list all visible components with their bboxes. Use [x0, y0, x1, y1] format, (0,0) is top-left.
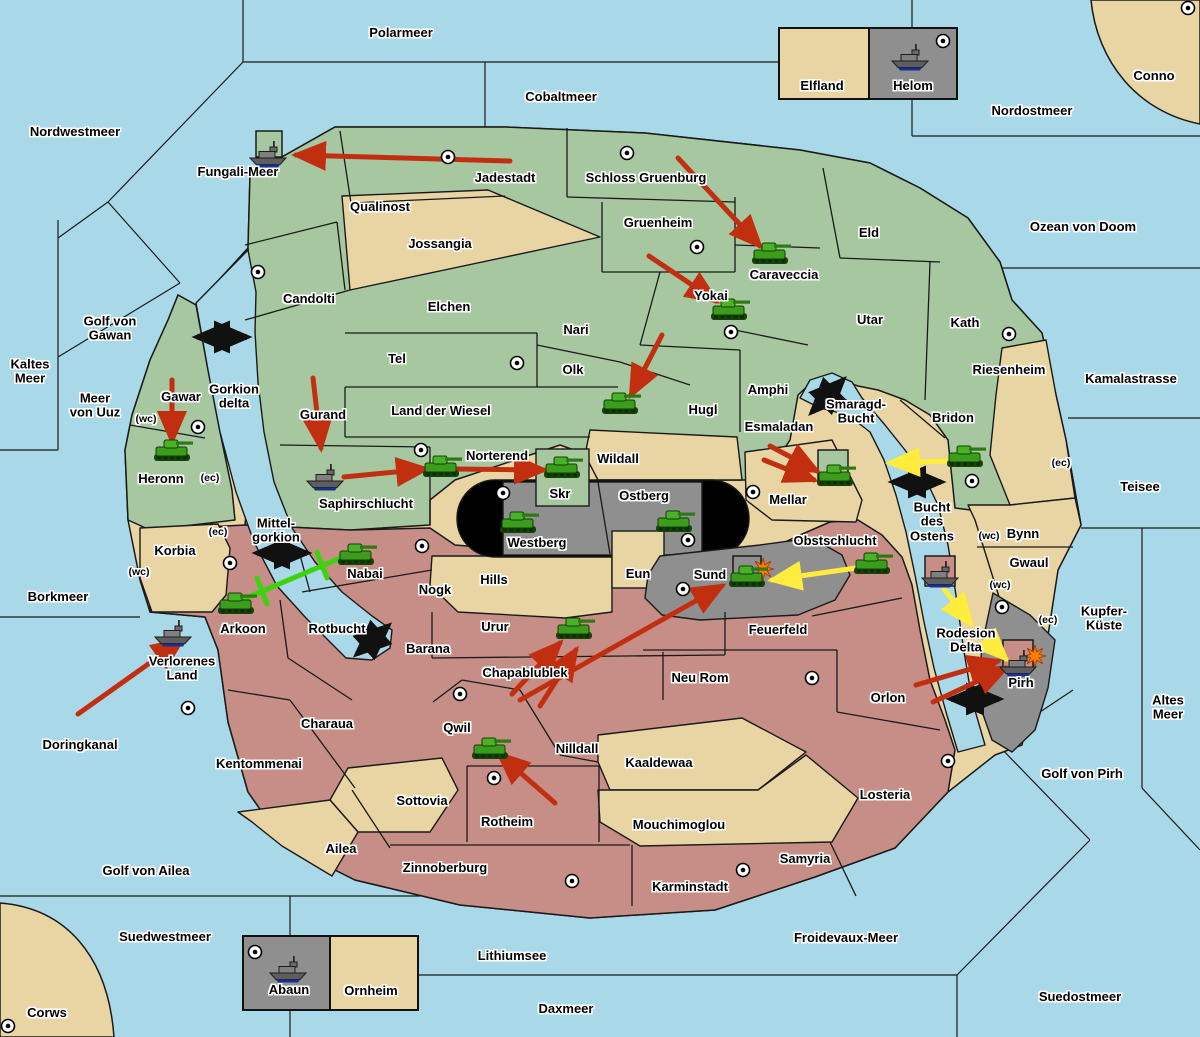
label-elchen: Elchen: [428, 300, 471, 314]
label-kupfer-kueste: Kupfer- Küste: [1081, 605, 1127, 634]
label-utar: Utar: [857, 313, 883, 327]
label-smaragd-bucht: Smaragd- Bucht: [826, 398, 886, 427]
label-wc-korbia: (wc): [129, 567, 150, 579]
label-eun: Eun: [626, 567, 651, 581]
label-wc-bynn: (wc): [979, 531, 1000, 543]
label-mouchimoglou: Mouchimoglou: [633, 818, 725, 832]
label-skr: Skr: [550, 487, 571, 501]
label-urur: Urur: [481, 620, 508, 634]
label-kamalastrasse: Kamalastrasse: [1085, 372, 1177, 386]
map-labels-layer: PolarmeerNordwestmeerCobaltmeerNordostme…: [0, 0, 1200, 1037]
label-meer-von-uuz: Meer von Uuz: [70, 392, 121, 421]
label-golf-von-pirh: Golf von Pirh: [1041, 767, 1123, 781]
label-fungali-meer: Fungali-Meer: [198, 165, 279, 179]
label-eld: Eld: [859, 226, 879, 240]
label-polarmeer: Polarmeer: [369, 26, 433, 40]
label-ornheim: Ornheim: [344, 984, 397, 998]
label-froidevaux-meer: Froidevaux-Meer: [794, 931, 898, 945]
label-norterend: Norterend: [466, 449, 528, 463]
label-mittel-gorkion: Mittel- gorkion: [252, 517, 300, 546]
label-kath: Kath: [951, 316, 980, 330]
label-sottovia: Sottovia: [396, 794, 447, 808]
label-borkmeer: Borkmeer: [28, 590, 89, 604]
label-bynn: Bynn: [1007, 527, 1040, 541]
label-conno: Conno: [1133, 69, 1174, 83]
label-rotbucht: Rotbucht: [308, 622, 365, 636]
label-kaaldewaa: Kaaldewaa: [625, 756, 692, 770]
label-verlorenes-land: Verlorenes Land: [149, 655, 216, 684]
label-golf-von-gawan: Golf von Gawan: [84, 315, 137, 344]
label-nogk: Nogk: [419, 583, 452, 597]
label-wc-gwaul: (wc): [990, 580, 1011, 592]
label-hugl: Hugl: [689, 403, 718, 417]
label-samyria: Samyria: [780, 852, 831, 866]
label-orlon: Orlon: [871, 691, 906, 705]
label-rodesion-delta: Rodesion Delta: [936, 627, 995, 656]
label-heronn: Heronn: [138, 472, 184, 486]
label-saphirschlucht: Saphirschlucht: [319, 497, 413, 511]
label-doringkanal: Doringkanal: [42, 738, 117, 752]
label-karminstadt: Karminstadt: [652, 880, 728, 894]
label-nordwestmeer: Nordwestmeer: [30, 125, 120, 139]
label-gruenheim: Gruenheim: [624, 216, 693, 230]
label-helom: Helom: [893, 79, 933, 93]
label-korbia: Korbia: [154, 544, 195, 558]
label-amphi: Amphi: [748, 383, 788, 397]
label-elfland: Elfland: [800, 79, 843, 93]
label-ailea: Ailea: [325, 842, 356, 856]
label-neu-rom: Neu Rom: [671, 671, 728, 685]
label-candolti: Candolti: [283, 292, 335, 306]
label-rotheim: Rotheim: [481, 815, 533, 829]
label-gorkion-delta: Gorkion delta: [209, 383, 259, 412]
label-losteria: Losteria: [860, 788, 911, 802]
label-ec-bynn: (ec): [1052, 458, 1071, 470]
label-westberg: Westberg: [508, 536, 567, 550]
label-abaun: Abaun: [269, 983, 309, 997]
label-nordostmeer: Nordostmeer: [992, 104, 1073, 118]
label-nari: Nari: [563, 323, 588, 337]
label-ec-gwaul: (ec): [1039, 615, 1058, 627]
label-qwil: Qwil: [443, 721, 470, 735]
label-sund: Sund: [694, 568, 727, 582]
label-chapablublek: Chapablublek: [482, 666, 567, 680]
label-bucht-des-ostens: Bucht des Ostens: [910, 501, 954, 544]
label-gwaul: Gwaul: [1009, 556, 1048, 570]
label-pirh: Pirh: [1008, 676, 1033, 690]
label-suedwestmeer: Suedwestmeer: [119, 930, 211, 944]
label-ostberg: Ostberg: [619, 489, 669, 503]
label-land-der-wiesel: Land der Wiesel: [391, 404, 491, 418]
label-hills: Hills: [480, 573, 507, 587]
label-riesenheim: Riesenheim: [973, 363, 1046, 377]
label-arkoon: Arkoon: [220, 622, 266, 636]
label-obstschlucht: Obstschlucht: [793, 534, 876, 548]
label-suedostmeer: Suedostmeer: [1039, 990, 1121, 1004]
label-caraveccia: Caraveccia: [750, 268, 819, 282]
label-corws: Corws: [27, 1006, 67, 1020]
label-bridon: Bridon: [932, 411, 974, 425]
label-ozean-von-doom: Ozean von Doom: [1030, 220, 1136, 234]
label-zinnoberburg: Zinnoberburg: [403, 861, 488, 875]
label-mellar: Mellar: [769, 493, 807, 507]
label-nilldall: Nilldall: [556, 742, 599, 756]
label-daxmeer: Daxmeer: [539, 1002, 594, 1016]
label-ec-korbia: (ec): [209, 527, 228, 539]
label-wildall: Wildall: [597, 452, 639, 466]
label-cobaltmeer: Cobaltmeer: [525, 90, 597, 104]
label-schloss-gruenburg: Schloss Gruenburg: [586, 171, 707, 185]
label-olk: Olk: [563, 363, 584, 377]
label-gurand: Gurand: [300, 408, 346, 422]
game-map[interactable]: PolarmeerNordwestmeerCobaltmeerNordostme…: [0, 0, 1200, 1037]
label-esmaladan: Esmaladan: [745, 420, 814, 434]
label-jossangia: Jossangia: [408, 237, 472, 251]
label-wc-heronn: (wc): [136, 414, 157, 426]
label-kentommenai: Kentommenai: [216, 757, 302, 771]
label-lithiumsee: Lithiumsee: [478, 949, 547, 963]
label-gawar: Gawar: [161, 390, 201, 404]
label-yokai: Yokai: [694, 289, 728, 303]
label-qualinost: Qualinost: [350, 200, 410, 214]
label-charaua: Charaua: [301, 717, 353, 731]
label-jadestadt: Jadestadt: [475, 171, 536, 185]
label-barana: Barana: [406, 642, 450, 656]
label-feuerfeld: Feuerfeld: [749, 623, 808, 637]
label-nabai: Nabai: [347, 567, 382, 581]
label-golf-von-ailea: Golf von Ailea: [103, 864, 190, 878]
label-tel: Tel: [388, 352, 406, 366]
label-teisee: Teisee: [1120, 480, 1160, 494]
label-ec-heronn: (ec): [201, 473, 220, 485]
label-altes-meer: Altes Meer: [1152, 694, 1184, 723]
label-kaltes-meer: Kaltes Meer: [10, 358, 49, 387]
